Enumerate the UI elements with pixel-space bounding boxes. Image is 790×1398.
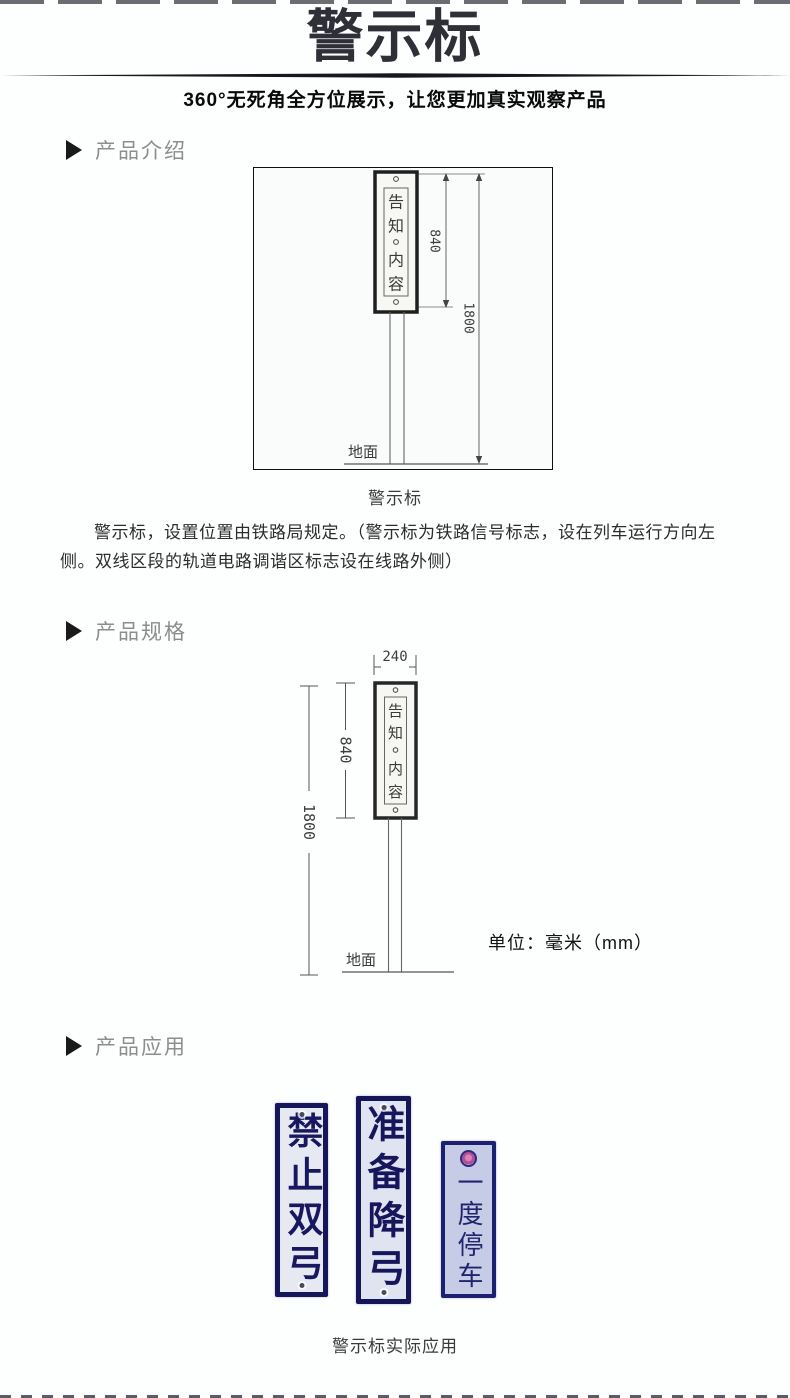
mounting-hole (381, 1105, 386, 1110)
sign-char: 容 (388, 275, 404, 294)
sign-char: 告 (388, 193, 404, 212)
page-title: 警示标 (0, 4, 790, 70)
intro-paragraph: 警示标，设置位置由铁路局规定。（警示标为铁路信号标志，设在列车运行方向左侧。双线… (60, 518, 738, 576)
section-label: 产品应用 (95, 1031, 187, 1061)
section-header-product-spec: 产品规格 (66, 616, 187, 646)
ground-label: 地面 (348, 443, 378, 461)
sign-char: 知 (388, 217, 404, 236)
dim-label-840: 840 (427, 229, 442, 252)
sign-char: 容 (388, 783, 403, 801)
dim-label-840: 840 (337, 736, 355, 763)
applied-sign-photo-jinzhi-shuanggong: 禁止双弓 (275, 1103, 328, 1297)
mounting-hole (299, 1112, 304, 1117)
intro-drawing-caption: 警示标 (0, 484, 790, 509)
intro-technical-drawing: 告 知 内 容 地面 840 1800 (253, 167, 553, 470)
unit-note: 单位：毫米（mm） (488, 929, 653, 955)
railway-emblem-icon (460, 1150, 477, 1167)
ground-label: 地面 (346, 951, 376, 969)
section-header-product-intro: 产品介绍 (66, 135, 187, 165)
sign-char: 内 (388, 251, 404, 270)
sign-char: 告 (388, 702, 403, 720)
applied-sign-text: 一度停车 (450, 1169, 487, 1293)
sign-char: 知 (388, 724, 403, 742)
dim-arrow-down (476, 456, 482, 464)
dim-label-1800: 1800 (461, 302, 476, 333)
page-subtitle: 360°无死角全方位展示，让您更加真实观察产品 (0, 85, 790, 112)
dim-label-240: 240 (382, 649, 407, 665)
section-header-product-application: 产品应用 (66, 1031, 187, 1061)
title-divider-line (0, 73, 790, 78)
product-detail-page: 警示标 360°无死角全方位展示，让您更加真实观察产品 产品介绍 告 知 内 容 (0, 0, 790, 1398)
applied-sign-text: 准备降弓 (356, 1104, 411, 1296)
section-label: 产品介绍 (95, 135, 187, 165)
section-label: 产品规格 (95, 616, 187, 646)
dim-label-1800: 1800 (300, 804, 318, 840)
triangle-bullet-icon (66, 621, 82, 641)
mounting-hole (381, 1290, 386, 1295)
applied-sign-photo-yidu-tingche: 一度停车 (441, 1141, 496, 1298)
sign-char: 内 (388, 760, 403, 778)
intro-drawing-svg: 告 知 内 容 地面 840 1800 (254, 168, 551, 468)
triangle-bullet-icon (66, 1036, 82, 1056)
triangle-bullet-icon (66, 140, 82, 160)
mounting-hole (299, 1283, 304, 1288)
applied-sign-text: 禁止双弓 (276, 1112, 328, 1288)
applied-sign-photo-zhunbei-jianggong: 准备降弓 (356, 1096, 411, 1304)
application-caption: 警示标实际应用 (0, 1332, 790, 1357)
